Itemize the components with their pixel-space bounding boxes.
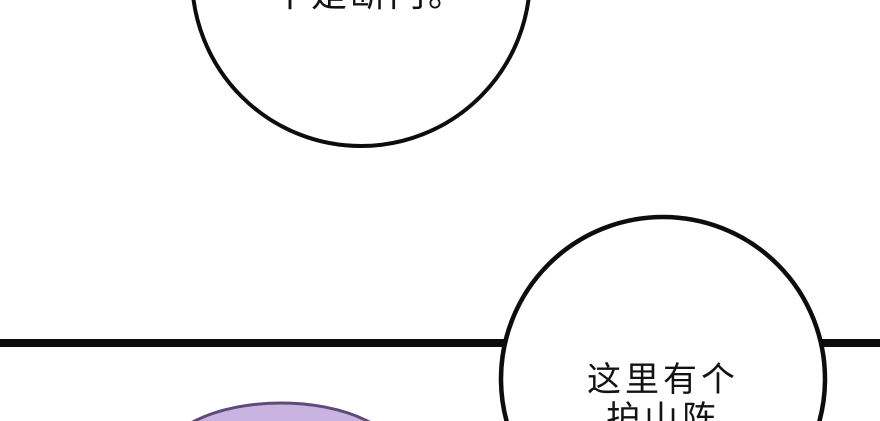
speech-bubble-top-shape [192, 0, 530, 146]
comic-panel-strip: 不是断门。 这里有个 护山阵 [0, 0, 880, 421]
panel-artwork [0, 0, 880, 421]
speech-bubble-bottom-text: 这里有个 护山阵 [513, 361, 813, 421]
character-head-dome [160, 403, 402, 421]
speech-bubble-top-text: 不是断门。 [272, 0, 467, 13]
